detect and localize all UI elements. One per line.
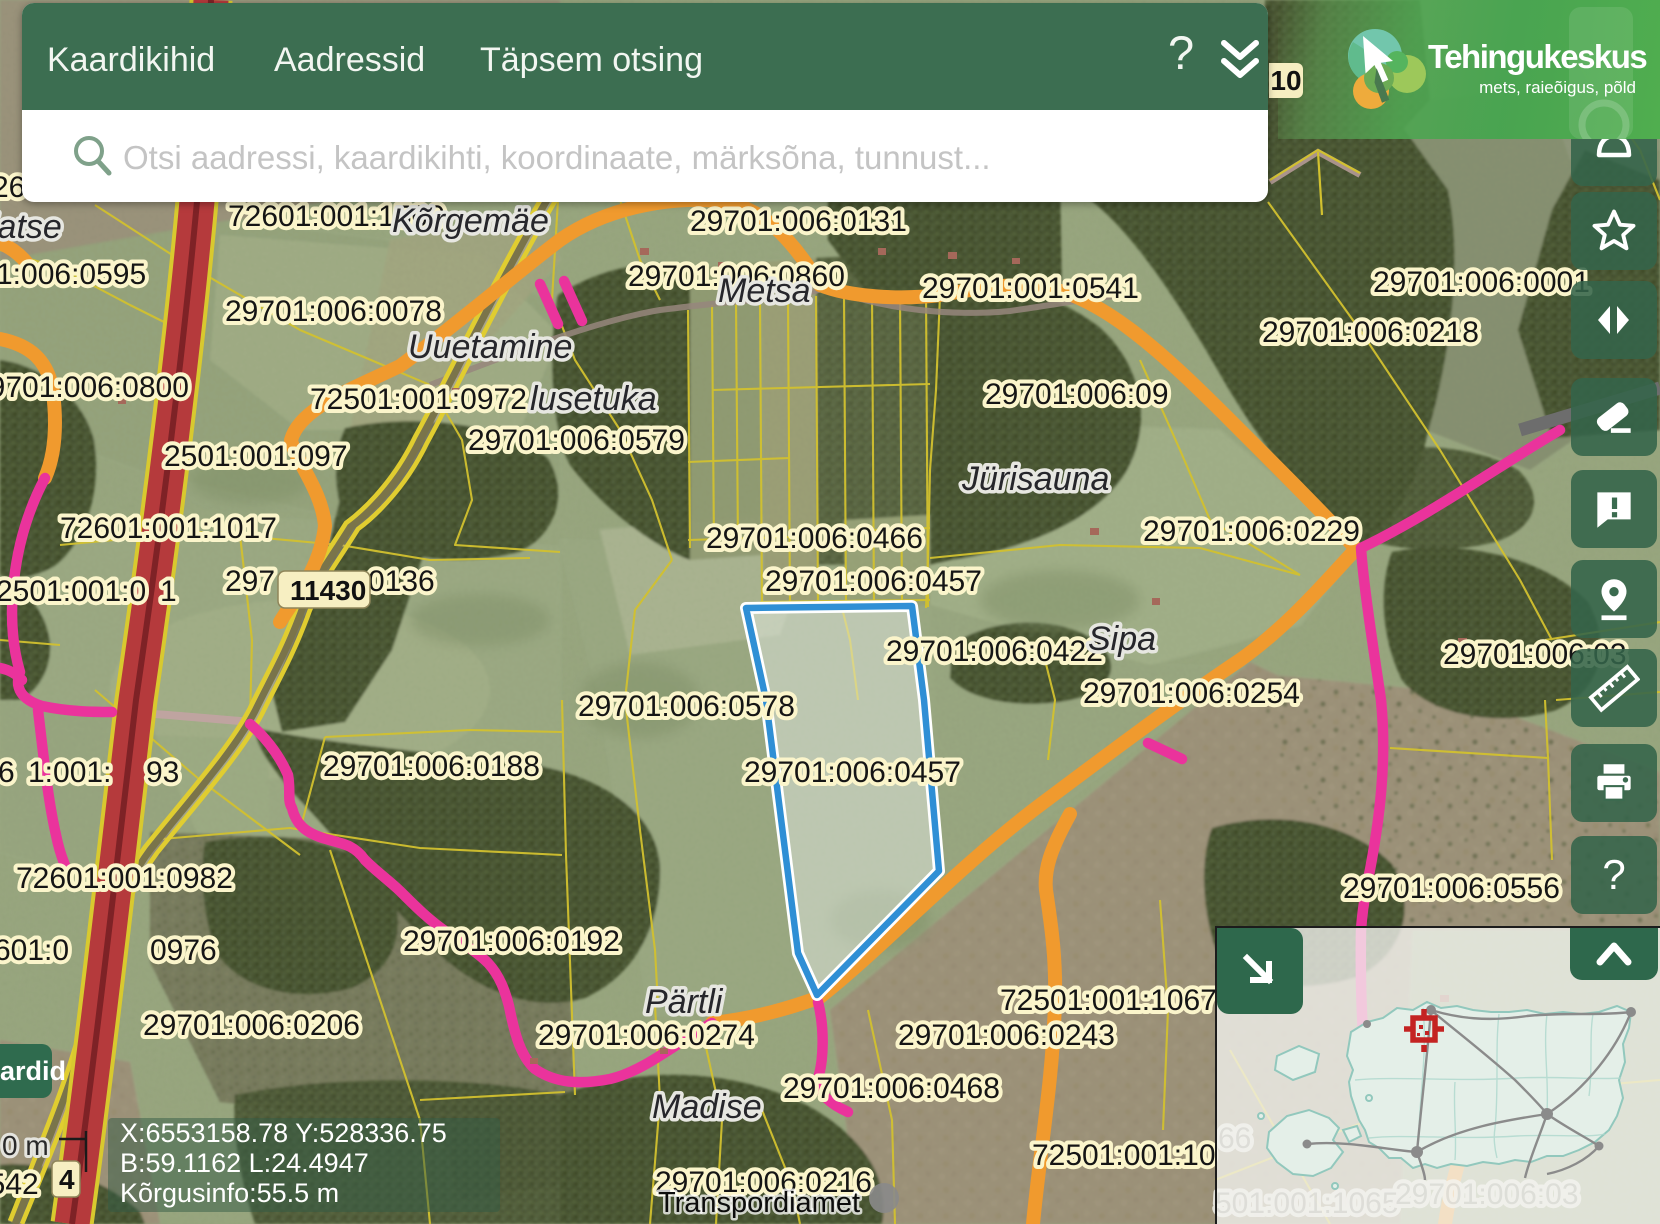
svg-text:29701:006:0001: 29701:006:0001 [1373, 266, 1590, 299]
svg-text:72501:001:10: 72501:001:10 [1032, 1139, 1216, 1172]
svg-text:1:006:0595: 1:006:0595 [0, 258, 146, 291]
svg-text:4: 4 [59, 1164, 75, 1195]
svg-text:11430: 11430 [290, 575, 366, 606]
svg-text:29701:006:0206: 29701:006:0206 [143, 1009, 360, 1042]
svg-text:29701:006:09: 29701:006:09 [985, 378, 1169, 411]
svg-text:lusetuka: lusetuka [530, 380, 657, 418]
svg-text:29701:006:0800: 29701:006:0800 [0, 371, 189, 404]
svg-text:0 m: 0 m [2, 1130, 49, 1161]
svg-text:297: 297 [225, 565, 275, 598]
svg-text:72601:001:1017: 72601:001:1017 [60, 512, 277, 545]
svg-text:jatse: jatse [0, 208, 62, 246]
svg-text:29701:006:0578: 29701:006:0578 [578, 690, 795, 723]
svg-text:72501:001:0972: 72501:001:0972 [310, 383, 527, 416]
svg-text:29701:006:0254: 29701:006:0254 [1083, 677, 1300, 710]
svg-text:0542: 0542 [0, 1168, 39, 1201]
svg-text:1: 1 [160, 575, 177, 608]
svg-text:93: 93 [146, 756, 179, 789]
svg-text:29701:006:0131: 29701:006:0131 [690, 205, 907, 238]
svg-text:601:0: 601:0 [0, 934, 69, 967]
svg-text:29701:006:0078: 29701:006:0078 [225, 295, 442, 328]
svg-text:2501:001:0: 2501:001:0 [0, 575, 146, 608]
svg-text:29701:006:0218: 29701:006:0218 [1262, 316, 1479, 349]
svg-text:29701:006:0466: 29701:006:0466 [706, 522, 923, 555]
svg-text:29701:006:0188: 29701:006:0188 [323, 750, 540, 783]
svg-text:29701:006:0422: 29701:006:0422 [886, 635, 1103, 668]
svg-text:2501:001:097: 2501:001:097 [164, 440, 348, 473]
svg-text:72501:001:1067: 72501:001:1067 [1000, 984, 1217, 1017]
svg-text:Transpordiamet: Transpordiamet [658, 1187, 860, 1219]
svg-text:Kõrgemäe: Kõrgemäe [392, 202, 549, 240]
svg-text:Uuetamine: Uuetamine [408, 328, 572, 366]
svg-text:Metsa: Metsa [718, 272, 811, 310]
svg-text:29701:006:0457: 29701:006:0457 [744, 756, 961, 789]
svg-text:1:001:: 1:001: [28, 756, 111, 789]
svg-text:0976: 0976 [150, 934, 217, 967]
svg-text:29701:006:0243: 29701:006:0243 [898, 1019, 1115, 1052]
svg-text:Sipa: Sipa [1088, 620, 1156, 658]
svg-text:29701:006:0556: 29701:006:0556 [1343, 872, 1560, 905]
svg-text:29701:001:0541: 29701:001:0541 [922, 272, 1139, 305]
svg-text:0136: 0136 [368, 565, 435, 598]
svg-text:29701:006:0229: 29701:006:0229 [1143, 515, 1360, 548]
svg-text:Madise: Madise [652, 1088, 762, 1126]
svg-text:29701:006:0468: 29701:006:0468 [783, 1072, 1000, 1105]
svg-text:Pärtli: Pärtli [645, 983, 724, 1021]
svg-text:29701:006:0457: 29701:006:0457 [765, 565, 982, 598]
svg-text:72601:001:0982: 72601:001:0982 [16, 862, 233, 895]
svg-text:Jürisauna: Jürisauna [961, 460, 1109, 498]
svg-text:6: 6 [0, 756, 15, 789]
svg-text:29701:006:0192: 29701:006:0192 [403, 925, 620, 958]
svg-text:29701:006:0579: 29701:006:0579 [468, 424, 685, 457]
svg-text:29701:006:0274: 29701:006:0274 [538, 1019, 755, 1052]
